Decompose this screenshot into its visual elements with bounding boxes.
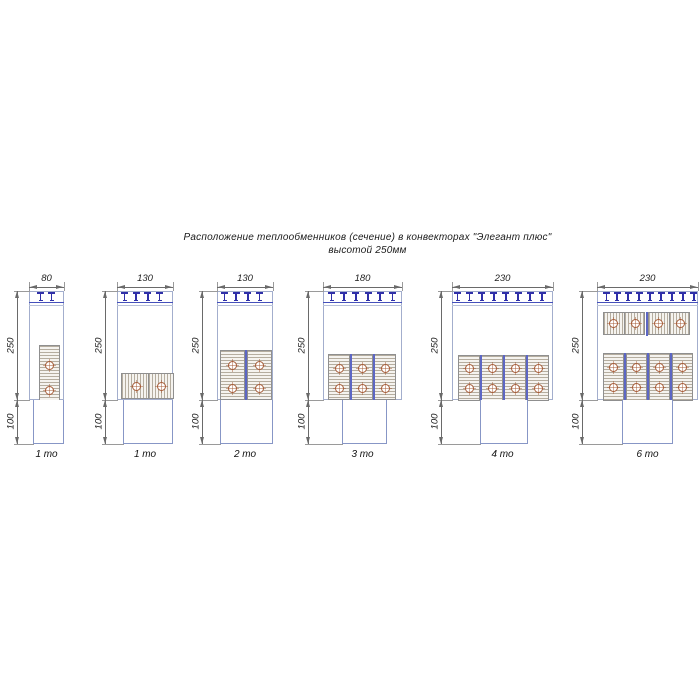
height-dim-line <box>308 291 309 400</box>
tube-circle <box>655 383 664 392</box>
width-dim-arrow-right <box>265 285 272 289</box>
width-dim-line <box>452 287 553 288</box>
width-dim-arrow-left <box>218 285 225 289</box>
grille-tooth-icon <box>352 292 359 301</box>
tube-circle <box>678 383 687 392</box>
grille-tooth-icon <box>340 292 347 301</box>
block-divider <box>624 353 626 404</box>
drawing-stage: Расположение теплообменников (сечение) в… <box>0 0 700 700</box>
grille-bottom-line <box>29 302 64 303</box>
width-ext-right <box>402 282 403 291</box>
height-dim-arrow-top <box>439 291 443 298</box>
width-dim-arrow-left <box>598 285 605 289</box>
tube-circle <box>45 386 54 395</box>
height-dim-label: 250 <box>191 326 202 366</box>
tube-circle <box>358 364 367 373</box>
block-divider <box>373 354 375 403</box>
grille-bottom-line <box>323 302 402 303</box>
tube-circle <box>511 364 520 373</box>
width-dim-label: 130 <box>125 273 165 284</box>
width-dim-label: 230 <box>483 273 523 284</box>
grille-tooth-icon <box>144 292 151 301</box>
grille-tooth-icon <box>625 292 632 301</box>
grille-inner-line <box>29 305 64 306</box>
heat-exchanger-block <box>649 353 670 401</box>
height-ext-bottom <box>14 444 34 445</box>
grille-bottom-line <box>217 302 273 303</box>
duct <box>480 400 528 444</box>
tube-circle <box>255 361 264 370</box>
grille-tooth-icon <box>121 292 128 301</box>
height-dim-arrow-top <box>580 291 584 298</box>
grille-tooth-icon <box>658 292 665 301</box>
tube-circle <box>632 383 641 392</box>
tube-circle <box>654 319 663 328</box>
tube-circle <box>335 364 344 373</box>
tube-circle <box>465 364 474 373</box>
height-dim-arrow-top <box>200 291 204 298</box>
grille-inner-line <box>217 305 273 306</box>
heat-exchanger-block <box>247 350 272 400</box>
width-dim-arrow-left <box>324 285 331 289</box>
height-dim-label: 250 <box>297 326 308 366</box>
grille-tooth-icon <box>454 292 461 301</box>
height-ext-bottom <box>199 444 221 445</box>
plinth-dim-label: 100 <box>571 402 582 442</box>
duct <box>220 400 273 444</box>
diagram-caption: 6 то <box>618 449 678 461</box>
tube-circle <box>358 384 367 393</box>
diagram-caption: 2 то <box>215 449 275 461</box>
tube-circle <box>228 361 237 370</box>
tube-circle <box>255 384 264 393</box>
height-dim-label: 250 <box>94 326 105 366</box>
height-dim-arrow-bottom <box>103 393 107 400</box>
tube-circle <box>678 363 687 372</box>
grille-tooth-icon <box>156 292 163 301</box>
height-dim-arrow-bottom <box>15 393 19 400</box>
height-dim-line <box>17 291 18 400</box>
height-dim-arrow-top <box>306 291 310 298</box>
height-dim-line <box>582 291 583 400</box>
grille-tooth-icon <box>466 292 473 301</box>
tube-circle <box>228 384 237 393</box>
width-ext-right <box>698 282 699 291</box>
tube-circle <box>157 382 166 391</box>
width-dim-arrow-left <box>453 285 460 289</box>
width-ext-right <box>273 282 274 291</box>
width-ext-right <box>553 282 554 291</box>
grille-tooth-icon <box>478 292 485 301</box>
height-dim-arrow-bottom <box>306 393 310 400</box>
heat-exchanger-block <box>626 353 647 401</box>
duct <box>622 400 673 444</box>
grille-tooth-icon <box>527 292 534 301</box>
plinth-dim-label: 100 <box>430 402 441 442</box>
grille-tooth-icon <box>647 292 654 301</box>
duct <box>342 400 387 444</box>
grille-tooth-icon <box>502 292 509 301</box>
tube-circle <box>488 364 497 373</box>
width-ext-right <box>173 282 174 291</box>
width-dim-line <box>597 287 698 288</box>
height-ext-bottom <box>579 444 623 445</box>
grille-tooth-icon <box>221 292 228 301</box>
block-divider <box>526 355 528 404</box>
drawing-title-line1: Расположение теплообменников (сечение) в… <box>35 232 700 243</box>
tube-circle <box>609 383 618 392</box>
width-dim-arrow-right <box>545 285 552 289</box>
tube-circle <box>632 363 641 372</box>
width-dim-arrow-right <box>56 285 63 289</box>
grille-tooth-icon <box>603 292 610 301</box>
diagram-caption: 4 то <box>473 449 533 461</box>
grille-tooth-icon <box>48 292 55 301</box>
width-dim-arrow-right <box>165 285 172 289</box>
tube-circle <box>511 384 520 393</box>
width-dim-label: 180 <box>343 273 383 284</box>
height-dim-label: 250 <box>571 326 582 366</box>
grille-tooth-icon <box>133 292 140 301</box>
tube-circle <box>655 363 664 372</box>
tube-circle <box>609 319 618 328</box>
grille-tooth-icon <box>244 292 251 301</box>
grille-bottom-line <box>452 302 553 303</box>
tube-circle <box>45 361 54 370</box>
block-divider <box>480 355 482 404</box>
grille-inner-line <box>117 305 173 306</box>
tube-circle <box>534 384 543 393</box>
grille-bottom-line <box>597 302 698 303</box>
block-divider <box>670 353 672 404</box>
block-divider <box>350 354 352 403</box>
block-divider <box>245 350 247 403</box>
plinth-dim-label: 100 <box>6 402 17 442</box>
height-dim-arrow-bottom <box>580 393 584 400</box>
height-ext-bottom <box>102 444 124 445</box>
block-divider <box>647 353 649 404</box>
width-dim-arrow-right <box>394 285 401 289</box>
grille-tooth-icon <box>233 292 240 301</box>
grille-bottom-line <box>117 302 173 303</box>
height-dim-arrow-top <box>103 291 107 298</box>
grille-tooth-icon <box>37 292 44 301</box>
grille-inner-line <box>597 305 698 306</box>
height-ext-bottom <box>305 444 343 445</box>
tube-circle <box>534 364 543 373</box>
diagram-caption: 1 то <box>115 449 175 461</box>
block-divider <box>646 312 648 336</box>
tube-circle <box>488 384 497 393</box>
plinth-dim-label: 100 <box>297 402 308 442</box>
duct <box>33 400 64 444</box>
plinth-dim-label: 100 <box>191 402 202 442</box>
tube-circle <box>465 384 474 393</box>
height-ext-bottom <box>438 444 481 445</box>
tube-circle <box>381 364 390 373</box>
height-dim-label: 250 <box>430 326 441 366</box>
tube-circle <box>132 382 141 391</box>
width-dim-line <box>323 287 402 288</box>
grille-tooth-icon <box>377 292 384 301</box>
drawing-title-line2: высотой 250мм <box>35 245 700 256</box>
height-dim-line <box>105 291 106 400</box>
diagram-caption: 1 то <box>17 449 77 461</box>
grille-tooth-icon <box>256 292 263 301</box>
width-dim-label: 130 <box>225 273 265 284</box>
grille-inner-line <box>323 305 402 306</box>
duct <box>123 400 173 444</box>
grille-tooth-icon <box>328 292 335 301</box>
heat-exchanger-block <box>603 353 624 401</box>
grille-tooth-icon <box>490 292 497 301</box>
block-divider <box>503 355 505 404</box>
tube-circle <box>631 319 640 328</box>
tube-circle <box>335 384 344 393</box>
width-dim-arrow-left <box>118 285 125 289</box>
height-dim-line <box>202 291 203 400</box>
grille-tooth-icon <box>690 292 697 301</box>
plinth-dim-label: 100 <box>94 402 105 442</box>
height-dim-arrow-top <box>15 291 19 298</box>
grille-tooth-icon <box>668 292 675 301</box>
height-dim-arrow-bottom <box>200 393 204 400</box>
grille-tooth-icon <box>515 292 522 301</box>
grille-tooth-icon <box>679 292 686 301</box>
grille-tooth-icon <box>636 292 643 301</box>
diagram-caption: 3 то <box>333 449 393 461</box>
width-dim-arrow-left <box>30 285 37 289</box>
height-dim-label: 250 <box>6 326 17 366</box>
heat-exchanger-block <box>672 353 693 401</box>
width-dim-arrow-right <box>690 285 697 289</box>
grille-tooth-icon <box>365 292 372 301</box>
width-dim-label: 80 <box>27 273 67 284</box>
grille-tooth-icon <box>614 292 621 301</box>
height-dim-arrow-bottom <box>439 393 443 400</box>
grille-tooth-icon <box>539 292 546 301</box>
heat-exchanger-block <box>220 350 245 400</box>
tube-circle <box>381 384 390 393</box>
grille-tooth-icon <box>389 292 396 301</box>
tube-circle <box>676 319 685 328</box>
tube-circle <box>609 363 618 372</box>
height-dim-line <box>441 291 442 400</box>
width-dim-label: 230 <box>628 273 668 284</box>
grille-inner-line <box>452 305 553 306</box>
